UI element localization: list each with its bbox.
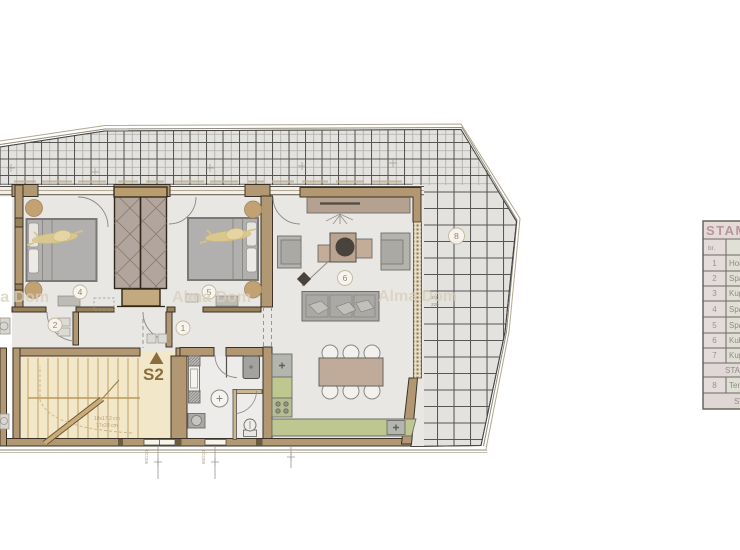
svg-text:br.: br. (708, 245, 715, 252)
svg-text:S2: S2 (143, 365, 164, 384)
svg-text:4: 4 (712, 305, 717, 314)
svg-text:4: 4 (78, 287, 83, 297)
svg-text:Spavaća: Spavaća (729, 274, 740, 283)
svg-text:Alma Dom: Alma Dom (0, 289, 49, 306)
svg-text:2: 2 (53, 320, 58, 330)
svg-text:Spavaća: Spavaća (729, 305, 740, 314)
svg-text:80/210: 80/210 (201, 450, 206, 464)
svg-text:18x17,2 cm: 18x17,2 cm (94, 416, 120, 422)
svg-text:7: 7 (712, 351, 717, 360)
svg-text:6: 6 (712, 336, 717, 345)
svg-text:Spavaća: Spavaća (729, 321, 740, 330)
svg-text:STAMB: STAMB (706, 223, 740, 238)
svg-text:Kupaonica: Kupaonica (729, 289, 740, 298)
svg-text:3: 3 (712, 289, 717, 298)
svg-text:1: 1 (181, 323, 186, 333)
svg-text:Alma Dom: Alma Dom (172, 289, 251, 306)
svg-text:SVEUKUPNO: SVEUKUPNO (734, 397, 740, 406)
svg-text:90/210: 90/210 (144, 450, 149, 464)
svg-text:8: 8 (454, 231, 459, 241)
svg-text:8: 8 (712, 381, 717, 390)
svg-text:17x28 cm: 17x28 cm (96, 423, 118, 429)
svg-text:Kupaonica: Kupaonica (729, 351, 740, 360)
svg-text:Terasa: Terasa (729, 381, 740, 390)
svg-text:5: 5 (712, 321, 717, 330)
svg-text:Alma Dom: Alma Dom (378, 288, 457, 305)
svg-text:STAMBENA: STAMBENA (725, 366, 740, 375)
svg-text:Hodnik: Hodnik (729, 259, 740, 268)
svg-text:Kuhinja: Kuhinja (729, 336, 740, 345)
svg-text:2: 2 (712, 274, 717, 283)
svg-text:1: 1 (712, 259, 717, 268)
svg-text:6: 6 (343, 273, 348, 283)
